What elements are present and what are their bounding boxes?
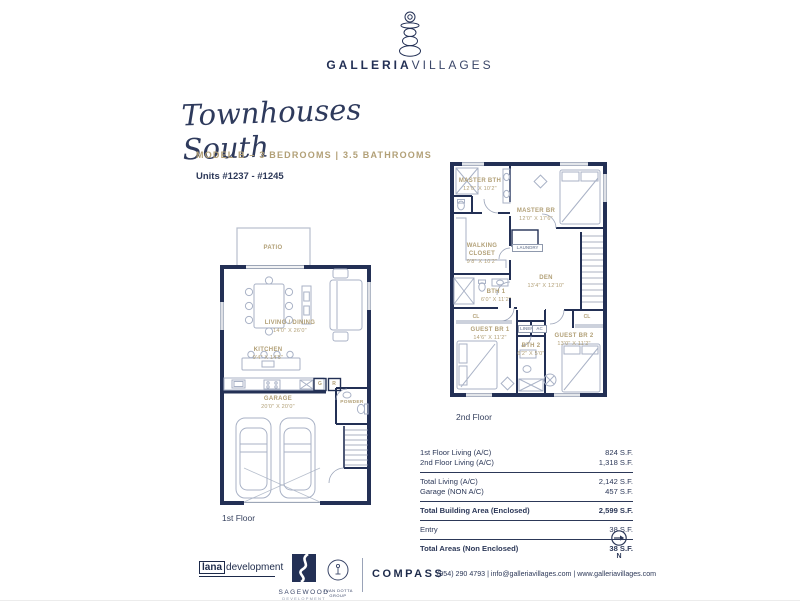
room-label-walking-closet: WALKING CLOSET9'8" X 10'2" [454, 243, 510, 266]
table-divider [420, 501, 633, 502]
contact-line: (954) 290 4793 | info@galleriavillages.c… [437, 570, 637, 578]
north-indicator: N [604, 529, 634, 560]
juan-dotta-badge-icon [326, 558, 350, 582]
garbage-bin-label: G [315, 381, 325, 387]
sagewood-s-icon [292, 554, 316, 582]
room-label-powder: POWDER [330, 400, 374, 406]
brand-wordmark: GALLERIAVILLAGES [300, 58, 520, 72]
model-subtitle: MODEL B – 3 BEDROOMS | 3.5 BATHROOMS [196, 150, 432, 160]
room-label-garage: GARAGE20'0" X 20'0" [238, 396, 318, 411]
floor-plan-1-drawing [218, 222, 374, 508]
room-label-den: DEN13'4" X 12'10" [516, 275, 576, 290]
units-range: Units #1237 - #1245 [196, 171, 284, 182]
laundry-label: LAUNDRY [512, 244, 543, 252]
table-row: Total Living (A/C)2,142 S.F. [420, 477, 633, 487]
closet-label-left: CL [465, 314, 487, 320]
footer-divider [362, 558, 363, 592]
room-label-bth1: BTH 16'0" X 11'2" [466, 289, 526, 304]
table-row: Garage (NON A/C)457 S.F. [420, 487, 633, 497]
table-row: 1st Floor Living (A/C)824 S.F. [420, 448, 633, 458]
table-divider [420, 520, 633, 521]
floor-plan-2: MASTER BTH12'0" X 10'2" MASTER BR12'0" X… [448, 158, 610, 428]
table-row-total-nonenclosed: Total Areas (Non Enclosed)38 S.F. [420, 544, 633, 554]
area-summary-table: 1st Floor Living (A/C)824 S.F. 2nd Floor… [420, 448, 633, 554]
lana-development-logo: lanadevelopment [199, 562, 275, 577]
table-row-total-building: Total Building Area (Enclosed)2,599 S.F. [420, 506, 633, 516]
juan-dotta-sub: JUAN DOTTA GROUP [322, 588, 354, 598]
compass-brand: COMPASS [372, 568, 444, 580]
room-label-kitchen: KITCHEN9'4" X 14'5" [228, 347, 308, 362]
closet-label-right: CL [576, 314, 598, 320]
room-label-patio: PATIO [243, 245, 303, 253]
floor-plan-1: PATIO LIVING / DINING14'0" X 26'0" KITCH… [218, 222, 374, 524]
brand-name-left: GALLERIA [326, 58, 411, 72]
floor1-caption: 1st Floor [222, 513, 255, 523]
floor2-caption: 2nd Floor [456, 412, 492, 422]
stacked-stones-icon [388, 10, 432, 58]
brand-name-right: VILLAGES [412, 58, 494, 72]
room-label-master-br: MASTER BR12'0" X 17'6" [506, 208, 566, 223]
north-arrow-icon [608, 529, 630, 549]
table-divider [420, 472, 633, 473]
room-label-guest-br1: GUEST BR 114'6" X 11'2" [456, 327, 524, 342]
room-label-master-bth: MASTER BTH12'0" X 10'2" [452, 178, 508, 193]
recycle-bin-label: R [329, 381, 339, 387]
table-row: 2nd Floor Living (A/C)1,318 S.F. [420, 458, 633, 468]
room-label-guest-br2: GUEST BR 213'0" X 11'2" [543, 333, 605, 348]
furniture-floor1 [224, 269, 368, 498]
table-divider [420, 539, 633, 540]
table-row: Entry38 S.F. [420, 525, 633, 535]
north-label: N [604, 553, 634, 560]
room-label-living-dining: LIVING / DINING14'0" X 26'0" [240, 320, 340, 335]
juan-dotta-group-logo: JUAN DOTTA GROUP [322, 558, 354, 598]
flyer-page: { "brand": { "name_left": "GALLERIA", "n… [0, 0, 800, 600]
linen-label: LINEN [518, 325, 533, 333]
